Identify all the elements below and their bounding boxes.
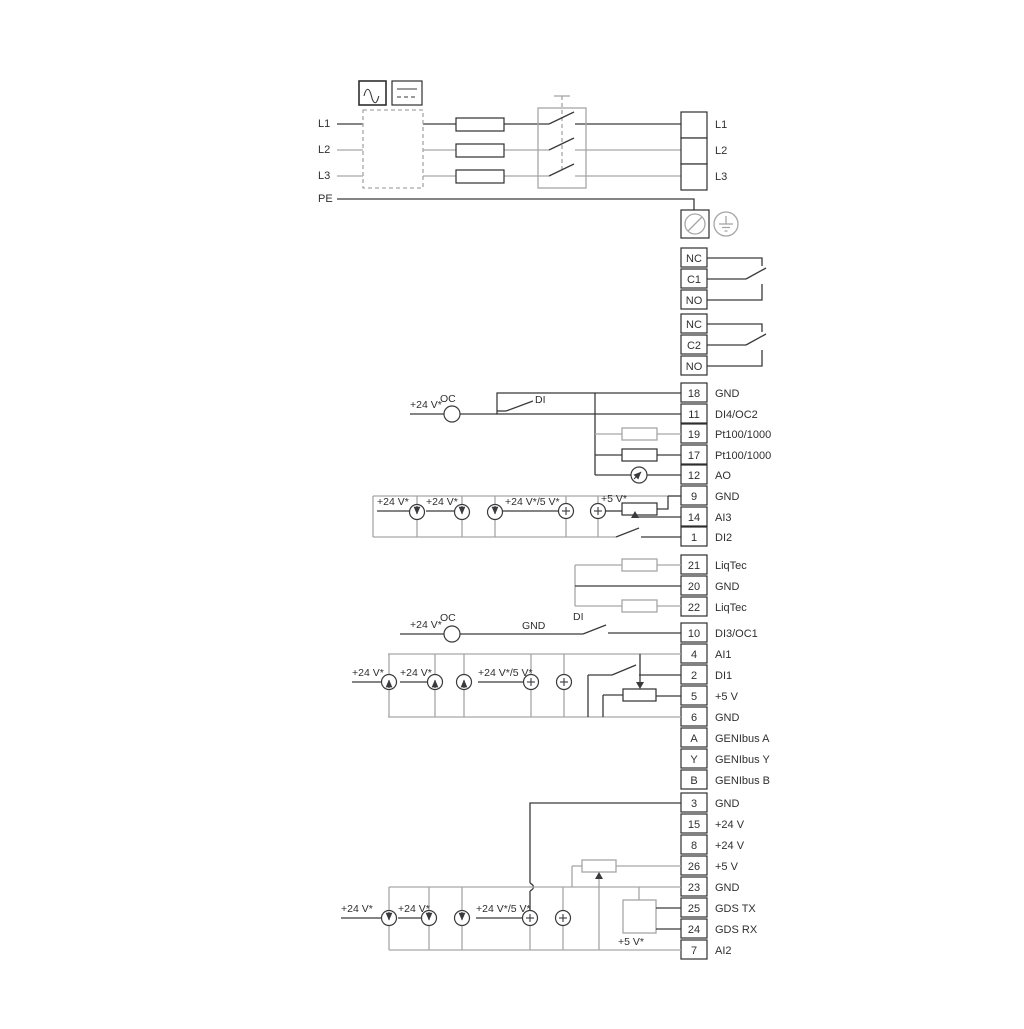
- terminal-22: 22LiqTec: [681, 597, 747, 616]
- terminal-25-num: 25: [688, 903, 700, 915]
- terminal-15-num: 15: [688, 819, 700, 831]
- oc-label: OC: [440, 612, 456, 624]
- terminal-19: 19Pt100/1000: [681, 424, 771, 443]
- liqtec-circuit: [575, 559, 681, 612]
- terminal-8: 8+24 V: [681, 835, 745, 854]
- v24-5v-label: +24 V*/5 V*: [478, 667, 533, 679]
- terminal-B-num: B: [690, 775, 697, 787]
- terminal-1: 1DI2: [681, 527, 732, 546]
- di-label: DI: [573, 611, 584, 623]
- v24-5v-label: +24 V*/5 V*: [505, 496, 560, 508]
- terminal-15-label: +24 V: [715, 819, 745, 831]
- di-label: DI: [535, 394, 546, 406]
- relay1-nc: NC: [686, 253, 702, 265]
- terminal-4-num: 4: [691, 649, 697, 661]
- output-label-l2: L2: [715, 145, 727, 157]
- voltage-source-icon: [556, 911, 571, 926]
- terminal-1-label: DI2: [715, 532, 732, 544]
- relay2-nc: NC: [686, 319, 702, 331]
- terminal-24-num: 24: [688, 924, 700, 936]
- terminal-18: 18GND: [681, 383, 740, 402]
- ac-box-icon: [359, 81, 386, 105]
- v24-label: +24 V*: [398, 903, 430, 915]
- current-source-icon: [455, 911, 470, 926]
- potentiometer-icon: [622, 496, 681, 518]
- terminal-19-num: 19: [688, 429, 700, 441]
- v24-label: +24 V*: [410, 399, 442, 411]
- terminal-A-label: GENIbus A: [715, 733, 770, 745]
- relay1-c1: C1: [687, 274, 701, 286]
- di-switch-icon: [583, 625, 681, 634]
- terminal-6-num: 6: [691, 712, 697, 724]
- current-source-icon: [410, 505, 425, 520]
- terminal-A: AGENIbus A: [681, 728, 770, 747]
- terminal-17: 17Pt100/1000: [681, 445, 771, 464]
- terminal-10-num: 10: [688, 628, 700, 640]
- open-collector-icon: [444, 626, 460, 642]
- terminal-3: 3GND: [681, 793, 740, 812]
- terminal-21-num: 21: [688, 560, 700, 572]
- v24-label: +24 V*: [377, 496, 409, 508]
- terminal-8-num: 8: [691, 840, 697, 852]
- oc-label: OC: [440, 393, 456, 405]
- relay2-c2: C2: [687, 340, 701, 352]
- terminal-10: 10DI3/OC1: [681, 623, 758, 642]
- input-label-l3: L3: [318, 170, 330, 182]
- io3-terminals: 3GND 15+24 V 8+24 V 26+5 V 23GND 25GDS T…: [681, 793, 758, 959]
- terminal-7: 7AI2: [681, 940, 732, 959]
- terminal-25-label: GDS TX: [715, 903, 756, 915]
- v5-label: +5 V*: [618, 936, 644, 948]
- open-collector-icon: [444, 406, 460, 422]
- terminal-26: 26+5 V: [681, 856, 739, 875]
- disconnect-switch-icon: [538, 96, 586, 188]
- terminal-26-label: +5 V: [715, 861, 739, 873]
- terminal-6: 6GND: [681, 707, 740, 726]
- di-switch-icon: [497, 401, 533, 411]
- di-box: [497, 393, 595, 414]
- terminal-23-num: 23: [688, 882, 700, 894]
- terminal-14-label: AI3: [715, 512, 732, 524]
- voltage-source-icon: [559, 504, 574, 519]
- terminal-12-label: AO: [715, 470, 731, 482]
- terminal-24: 24GDS RX: [681, 919, 758, 938]
- dc-box-icon: [392, 81, 422, 105]
- terminal-7-num: 7: [691, 945, 697, 957]
- mains-wires: [337, 124, 694, 210]
- relay2-no: NO: [686, 361, 703, 373]
- terminal-22-num: 22: [688, 602, 700, 614]
- pt100-resistor-icon: [622, 428, 657, 440]
- pt100-ao-circuit: [595, 414, 681, 483]
- input-label-l2: L2: [318, 144, 330, 156]
- pe-terminal: [681, 210, 738, 238]
- liqtec-terminals: 21LiqTec 20GND 22LiqTec: [681, 555, 747, 616]
- relay1-contact-icon: [707, 258, 766, 300]
- terminal-5-num: 5: [691, 691, 697, 703]
- terminal-6-label: GND: [715, 712, 740, 724]
- terminal-20-num: 20: [688, 581, 700, 593]
- analog-output-meter-icon: [631, 467, 647, 483]
- terminal-22-label: LiqTec: [715, 602, 747, 614]
- io2-terminals: 10DI3/OC1 4AI1 2DI1 5+5 V 6GND AGENIbus …: [681, 623, 770, 789]
- di2-switch-icon: [616, 528, 681, 537]
- terminal-26-num: 26: [688, 861, 700, 873]
- terminal-23: 23GND: [681, 877, 740, 896]
- v24-label: +24 V*: [426, 496, 458, 508]
- terminal-12-num: 12: [688, 470, 700, 482]
- terminal-17-label: Pt100/1000: [715, 450, 771, 462]
- terminal-Y: YGENIbus Y: [681, 749, 770, 768]
- di4-circuit: +24 V* OC DI: [410, 393, 681, 422]
- terminal-B-label: GENIbus B: [715, 775, 770, 787]
- terminal-21: 21LiqTec: [681, 555, 747, 574]
- current-source-icon: [457, 675, 472, 690]
- output-label-l3: L3: [715, 171, 727, 183]
- ai3-circuit: +24 V* +24 V* +24 V*/5 V* +5 V*: [373, 493, 681, 537]
- terminal-9-num: 9: [691, 491, 697, 503]
- terminal-4-label: AI1: [715, 649, 732, 661]
- terminal-2-label: DI1: [715, 670, 732, 682]
- input-label-l1: L1: [318, 118, 330, 130]
- voltage-source-icon: [591, 504, 606, 519]
- terminal-Y-label: GENIbus Y: [715, 754, 770, 766]
- gnd-label: GND: [522, 620, 546, 632]
- fuse-l1-icon: [456, 118, 504, 131]
- output-label-l1: L1: [715, 119, 727, 131]
- io1-terminals: 18GND 11DI4/OC2 19Pt100/1000 17Pt100/100…: [681, 383, 771, 546]
- terminal-4: 4AI1: [681, 644, 732, 663]
- potentiometer-icon: [603, 654, 681, 717]
- gds-sensor-box: [623, 887, 681, 933]
- terminal-Y-num: Y: [690, 754, 698, 766]
- wiring-diagram: L1 L2 L3 PE: [0, 0, 1024, 1024]
- terminal-11-num: 11: [688, 409, 699, 421]
- terminal-20-label: GND: [715, 581, 740, 593]
- terminal-17-num: 17: [688, 450, 700, 462]
- di3-circuit: +24 V* OC GND DI: [400, 611, 681, 642]
- earth-icon: [714, 212, 738, 236]
- terminal-B: BGENIbus B: [681, 770, 770, 789]
- terminal-25: 25GDS TX: [681, 898, 756, 917]
- terminal-18-num: 18: [688, 388, 700, 400]
- terminal-14: 14AI3: [681, 507, 732, 526]
- terminal-9-label: GND: [715, 491, 740, 503]
- terminal-2: 2DI1: [681, 665, 732, 684]
- fuse-l3-icon: [456, 170, 504, 183]
- terminal-21-label: LiqTec: [715, 560, 747, 572]
- liqtec-sensor-icon: [622, 559, 657, 571]
- terminal-1-num: 1: [691, 532, 697, 544]
- terminal-11-label: DI4/OC2: [715, 409, 758, 421]
- relay1-section: NC C1 NO: [681, 248, 766, 309]
- terminal-15: 15+24 V: [681, 814, 745, 833]
- v24-label: +24 V*: [352, 667, 384, 679]
- v24-label: +24 V*: [410, 619, 442, 631]
- terminal-19-label: Pt100/1000: [715, 429, 771, 441]
- terminal-20: 20GND: [681, 576, 740, 595]
- drive-outline: [363, 110, 423, 188]
- v24-label: +24 V*: [400, 667, 432, 679]
- relay2-contact-icon: [707, 324, 766, 366]
- terminal-10-label: DI3/OC1: [715, 628, 758, 640]
- terminal-5-label: +5 V: [715, 691, 739, 703]
- terminal-14-num: 14: [688, 512, 700, 524]
- input-label-pe: PE: [318, 193, 333, 205]
- wiring-diagram-page: L1 L2 L3 PE: [0, 0, 1024, 1024]
- v24-label: +24 V*: [341, 903, 373, 915]
- fuse-l2-icon: [456, 144, 504, 157]
- current-source-icon: [382, 911, 397, 926]
- mains-section: L1 L2 L3 PE: [318, 81, 738, 238]
- current-source-icon: [488, 505, 503, 520]
- pt100-resistor2-icon: [622, 449, 657, 461]
- terminal-2-num: 2: [691, 670, 697, 682]
- relay2-section: NC C2 NO: [681, 314, 766, 375]
- terminal-5: 5+5 V: [681, 686, 739, 705]
- terminal-24-label: GDS RX: [715, 924, 758, 936]
- terminal-A-num: A: [690, 733, 698, 745]
- terminal-18-label: GND: [715, 388, 740, 400]
- terminal-7-label: AI2: [715, 945, 732, 957]
- ai1-circuit: +24 V* +24 V* +24 V*/5 V*: [352, 654, 681, 717]
- terminal-23-label: GND: [715, 882, 740, 894]
- terminal-3-label: GND: [715, 798, 740, 810]
- terminal-11: 11DI4/OC2: [681, 404, 758, 423]
- terminal-3-num: 3: [691, 798, 697, 810]
- terminal-12: 12AO: [681, 465, 731, 484]
- v24-5v-label: +24 V*/5 V*: [476, 903, 531, 915]
- liqtec-sensor-icon: [622, 600, 657, 612]
- ai2-circuit: +24 V* +24 V* +24 V*/5 V* +5 V*: [341, 803, 681, 950]
- voltage-source-icon: [557, 675, 572, 690]
- mains-terminal-block: L1 L2 L3: [681, 112, 727, 190]
- terminal-8-label: +24 V: [715, 840, 745, 852]
- terminal-9: 9GND: [681, 486, 740, 505]
- relay1-no: NO: [686, 295, 703, 307]
